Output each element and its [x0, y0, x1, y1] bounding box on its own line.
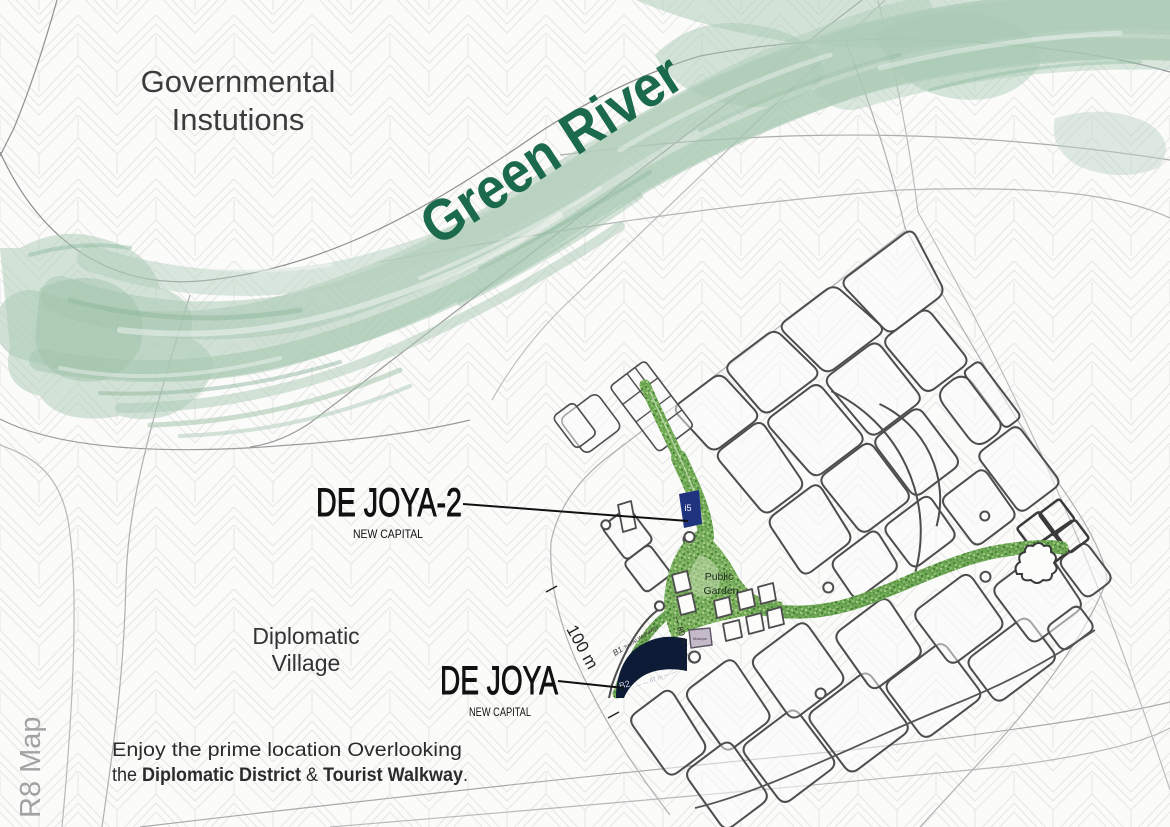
svg-text:the Diplomatic District & Tour: the Diplomatic District & Tourist Walkwa… — [112, 764, 468, 786]
svg-text:Governmental: Governmental — [141, 64, 336, 99]
svg-text:R8 Map: R8 Map — [15, 716, 47, 818]
svg-text:Village: Village — [272, 650, 341, 676]
svg-text:DE JOYA-2: DE JOYA-2 — [316, 481, 462, 525]
svg-text:Public: Public — [705, 571, 734, 583]
svg-text:Garden: Garden — [703, 585, 738, 597]
svg-text:Diplomatic: Diplomatic — [252, 623, 359, 649]
svg-text:NEW CAPITAL: NEW CAPITAL — [353, 527, 423, 541]
svg-text:Enjoy the prime location Overl: Enjoy the prime location Overlooking — [112, 739, 462, 761]
svg-text:Instutions: Instutions — [172, 102, 305, 137]
svg-text:NEW CAPITAL: NEW CAPITAL — [469, 705, 531, 719]
svg-text:Mosque: Mosque — [693, 636, 708, 641]
svg-text:DE JOYA: DE JOYA — [440, 659, 558, 703]
svg-text:i5: i5 — [684, 503, 691, 513]
